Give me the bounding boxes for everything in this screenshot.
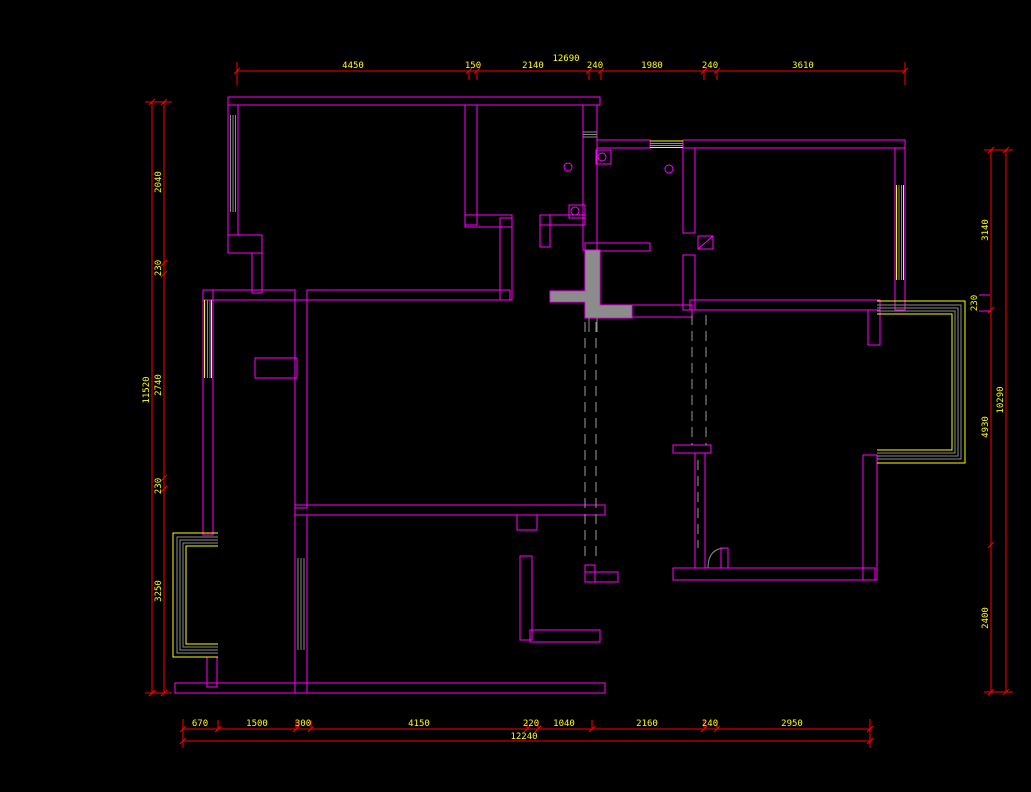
dim-label-overall: 12690 <box>552 54 579 64</box>
wall-segment <box>540 215 550 247</box>
dim-label: 4930 <box>981 416 991 438</box>
wall-segment <box>863 455 877 580</box>
wall-segment <box>683 140 905 148</box>
shear-wall-column <box>550 250 632 332</box>
dim-label: 240 <box>702 719 718 729</box>
wall-segment <box>683 148 695 233</box>
dim-label: 1500 <box>246 719 268 729</box>
door-leaf <box>721 548 728 568</box>
wall-segment <box>583 105 597 250</box>
dim-label: 2740 <box>154 374 164 396</box>
wall-segment <box>295 300 307 508</box>
door-opening-dashes <box>585 315 706 560</box>
wall-segment <box>517 515 537 530</box>
dim-label: 230 <box>154 478 164 494</box>
wall-segment <box>307 290 510 300</box>
dimension-chain-left: 2040 230 2740 230 3250 11520 <box>142 99 172 696</box>
floorplan-canvas: 12690 4450 150 2140 240 1980 240 3610 <box>0 0 1031 792</box>
dimension-chain-right: 3140 4930 2400 10290 230 <box>970 147 1013 695</box>
bay-window-right <box>877 301 965 463</box>
dim-label: 230 <box>154 260 164 276</box>
dim-label: 220 <box>523 719 539 729</box>
wall-segment <box>228 97 600 105</box>
wall-segment <box>868 310 880 345</box>
walls <box>175 97 905 693</box>
meter-box-diagonal <box>698 236 713 249</box>
dim-label-overall: 10290 <box>996 386 1006 413</box>
wall-segment <box>695 453 705 568</box>
bay-window-frame <box>877 314 952 450</box>
drain-symbol <box>564 163 572 171</box>
dim-label: 670 <box>192 719 208 729</box>
column-fill <box>550 250 632 318</box>
bay-window-frame <box>186 546 218 644</box>
wall-segment <box>465 105 477 225</box>
floor-drain-circle <box>571 207 579 215</box>
wall-segment <box>585 572 618 582</box>
wall-segment <box>203 290 295 300</box>
bay-window-glazing <box>877 305 961 459</box>
bay-window-glazing <box>877 308 958 456</box>
wall-segment <box>673 568 875 580</box>
wall-segment <box>673 445 711 453</box>
wall-segment <box>530 630 600 642</box>
dim-label: 2160 <box>636 719 658 729</box>
dim-label: 2040 <box>154 171 164 193</box>
wall-segment <box>597 140 650 148</box>
windows <box>205 115 904 650</box>
bay-window-left <box>173 533 218 657</box>
dim-label: 230 <box>970 295 980 311</box>
dim-label: 1980 <box>641 61 663 71</box>
wall-segment <box>585 565 595 582</box>
dim-label: 150 <box>465 61 481 71</box>
dim-label: 3610 <box>792 61 814 71</box>
door-swing-arc <box>708 548 726 568</box>
wall-segment <box>683 255 695 310</box>
wall-segment <box>175 683 605 693</box>
wall-segment <box>255 358 297 378</box>
dim-label: 4450 <box>342 61 364 71</box>
dim-label: 240 <box>702 61 718 71</box>
dim-label: 3250 <box>154 580 164 602</box>
dim-label: 240 <box>587 61 603 71</box>
wall-segment <box>520 556 532 640</box>
dim-label: 300 <box>295 719 311 729</box>
wall-segment <box>252 253 262 293</box>
wall-segment <box>500 218 512 300</box>
dim-label-overall: 11520 <box>142 376 152 403</box>
drain-symbol <box>665 165 673 173</box>
wall-segment <box>540 215 585 225</box>
wall-segment <box>228 235 262 253</box>
bay-window-glazing <box>877 311 955 453</box>
dim-label: 2950 <box>781 719 803 729</box>
dim-label-overall: 12240 <box>510 732 537 742</box>
wall-segment <box>295 505 605 515</box>
dim-label: 2140 <box>522 61 544 71</box>
floor-drain-circle <box>598 153 606 161</box>
dim-label: 2400 <box>981 607 991 629</box>
bay-window-glazing <box>183 543 218 647</box>
dim-label: 4150 <box>408 719 430 729</box>
dimension-chain-bottom: 670 1500 300 4150 220 1040 2160 240 2950… <box>180 719 873 748</box>
dimension-chain-top: 12690 4450 150 2140 240 1980 240 3610 <box>234 54 908 85</box>
dim-label: 1040 <box>553 719 575 729</box>
dim-label: 3140 <box>981 219 991 241</box>
wall-segment <box>690 300 880 310</box>
